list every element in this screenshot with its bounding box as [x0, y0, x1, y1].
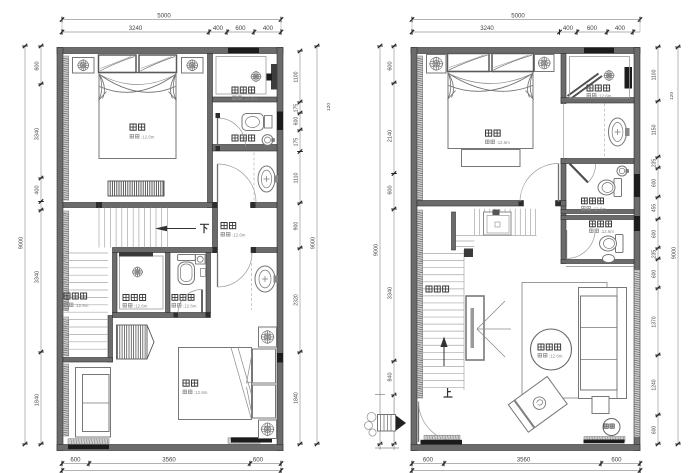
svg-text:120: 120 [326, 103, 332, 111]
svg-text:2320: 2320 [293, 294, 299, 306]
svg-text:600: 600 [651, 230, 657, 239]
svg-text:1100: 1100 [293, 71, 299, 82]
svg-text:1840: 1840 [34, 394, 40, 406]
svg-text:600: 600 [423, 456, 434, 463]
svg-text::12.6m: :12.6m [593, 206, 607, 211]
svg-text:235: 235 [651, 250, 657, 259]
svg-text:900: 900 [293, 222, 299, 231]
svg-text:5000: 5000 [157, 12, 171, 19]
svg-text:3340: 3340 [387, 287, 393, 299]
svg-text:400: 400 [615, 25, 626, 32]
svg-text::12.6m: :12.6m [183, 303, 197, 308]
svg-text::12.6m: :12.6m [244, 96, 258, 101]
svg-text:400: 400 [563, 25, 574, 32]
svg-text:1840: 1840 [293, 392, 299, 404]
svg-text:1100: 1100 [651, 69, 657, 80]
svg-text:3560: 3560 [162, 456, 176, 463]
svg-text:600: 600 [293, 117, 299, 126]
svg-text:600: 600 [387, 185, 393, 194]
svg-text:600: 600 [587, 25, 598, 32]
svg-text:840: 840 [387, 372, 393, 381]
svg-text:600: 600 [253, 456, 264, 463]
svg-text::12.6m: :12.6m [549, 353, 563, 358]
svg-text:235: 235 [651, 159, 657, 168]
svg-text:600: 600 [70, 456, 81, 463]
svg-text:600: 600 [651, 270, 657, 279]
svg-text:3560: 3560 [517, 456, 531, 463]
svg-text:9000: 9000 [310, 237, 316, 249]
svg-text:5000: 5000 [511, 12, 525, 19]
svg-text:120: 120 [669, 92, 675, 100]
svg-text:600: 600 [651, 426, 657, 435]
svg-text:175: 175 [293, 138, 299, 147]
svg-text::12.6m: :12.6m [601, 229, 615, 234]
svg-text:175: 175 [293, 104, 299, 113]
svg-text:3340: 3340 [34, 271, 40, 283]
svg-text:400: 400 [34, 185, 40, 194]
svg-text:1150: 1150 [651, 124, 657, 135]
svg-text::12.6m: :12.6m [232, 232, 246, 237]
svg-text:3240: 3240 [480, 25, 494, 32]
svg-text:1240: 1240 [651, 379, 657, 390]
svg-text:2140: 2140 [387, 130, 393, 142]
svg-text:400: 400 [263, 25, 274, 32]
svg-text::12.6m: :12.6m [134, 303, 148, 308]
svg-text:9000: 9000 [671, 247, 677, 259]
svg-text::12.6m: :12.6m [141, 134, 155, 139]
svg-text:400: 400 [213, 25, 224, 32]
svg-text::12.6m: :12.6m [75, 303, 89, 308]
svg-text:9000: 9000 [18, 237, 24, 249]
svg-text:600: 600 [611, 456, 622, 463]
svg-text:600: 600 [34, 61, 40, 70]
svg-text:1110: 1110 [293, 173, 299, 184]
svg-text::12.6m: :12.6m [497, 140, 511, 145]
svg-text:3240: 3240 [129, 25, 143, 32]
svg-text:1370: 1370 [651, 316, 657, 327]
svg-text:455: 455 [651, 204, 657, 213]
svg-text:3340: 3340 [34, 128, 40, 140]
svg-text::12.6m: :12.6m [194, 390, 208, 395]
svg-text:600: 600 [651, 179, 657, 188]
svg-text:600: 600 [387, 61, 393, 70]
svg-text:9000: 9000 [373, 244, 379, 256]
svg-text:600: 600 [235, 25, 246, 32]
